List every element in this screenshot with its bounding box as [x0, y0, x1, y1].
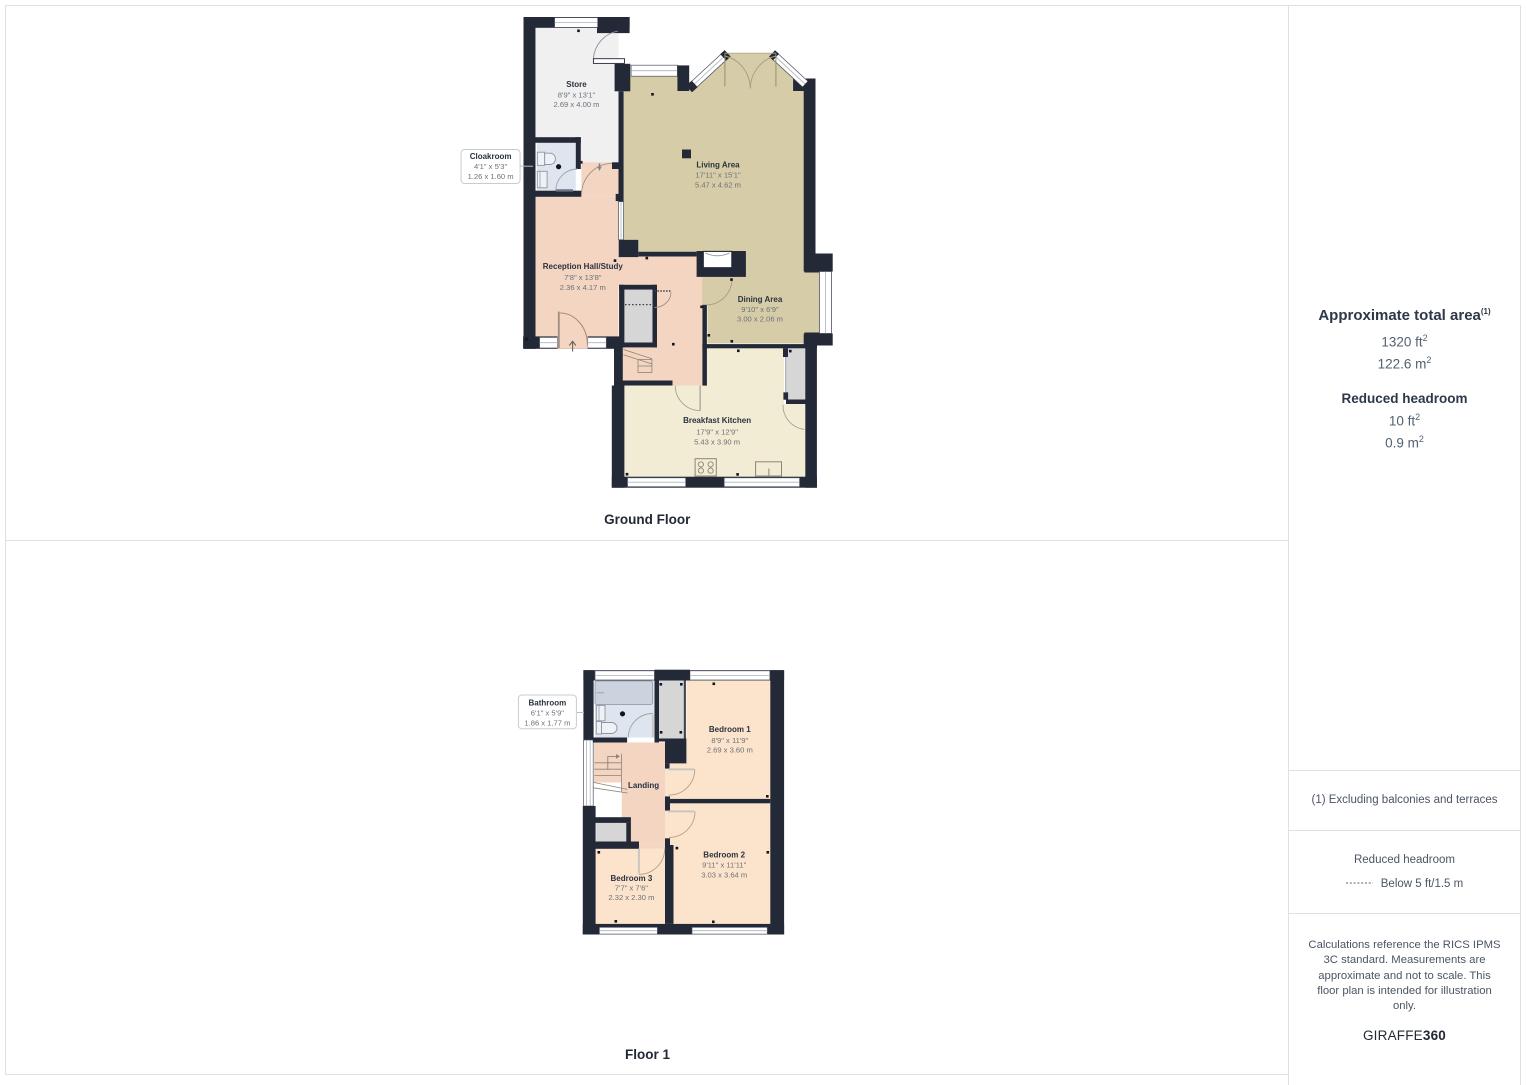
svg-text:2.69 x 4.00 m: 2.69 x 4.00 m — [553, 100, 599, 109]
svg-text:9'10" x 6'9": 9'10" x 6'9" — [741, 305, 779, 314]
svg-text:Bedroom 1: Bedroom 1 — [709, 725, 751, 734]
svg-text:Living Area: Living Area — [696, 161, 740, 170]
svg-text:2.36 x 4.17 m: 2.36 x 4.17 m — [560, 283, 606, 292]
svg-text:6'1" x 5'9": 6'1" x 5'9" — [531, 709, 565, 718]
svg-text:Cloakroom: Cloakroom — [470, 152, 512, 161]
svg-text:2.69 x 3.60 m: 2.69 x 3.60 m — [707, 746, 753, 755]
svg-text:Floor 1: Floor 1 — [625, 1047, 670, 1062]
svg-text:4'1" x 5'3": 4'1" x 5'3" — [474, 162, 508, 171]
svg-text:Breakfast Kitchen: Breakfast Kitchen — [683, 416, 751, 425]
svg-text:Dining Area: Dining Area — [738, 295, 783, 304]
svg-text:Store: Store — [566, 80, 587, 89]
svg-text:3.03 x 3.64 m: 3.03 x 3.64 m — [701, 870, 747, 879]
svg-text:5.47 x 4.62 m: 5.47 x 4.62 m — [695, 180, 741, 189]
svg-text:2.32 x 2.30 m: 2.32 x 2.30 m — [608, 893, 654, 902]
svg-text:7'8" x 13'8": 7'8" x 13'8" — [564, 273, 602, 282]
svg-text:8'9" x 13'1": 8'9" x 13'1" — [558, 90, 596, 99]
svg-text:8'9" x 11'9": 8'9" x 11'9" — [711, 736, 748, 745]
svg-text:Bedroom 2: Bedroom 2 — [703, 850, 745, 859]
svg-text:1.86 x 1.77 m: 1.86 x 1.77 m — [524, 719, 570, 728]
svg-text:5.43 x 3.90 m: 5.43 x 3.90 m — [694, 438, 740, 447]
svg-text:3.00 x 2.06 m: 3.00 x 2.06 m — [737, 315, 783, 324]
svg-text:Landing: Landing — [628, 781, 659, 790]
svg-text:17'9" x 12'9": 17'9" x 12'9" — [696, 428, 738, 437]
svg-text:Bedroom 3: Bedroom 3 — [611, 874, 653, 883]
svg-text:Ground Floor: Ground Floor — [604, 512, 691, 527]
svg-text:1.26 x 1.60 m: 1.26 x 1.60 m — [468, 172, 514, 181]
svg-text:Bathroom: Bathroom — [529, 699, 567, 708]
svg-text:17'11" x 15'1": 17'11" x 15'1" — [695, 171, 741, 180]
svg-text:9'11" x 11'11": 9'11" x 11'11" — [702, 861, 746, 870]
svg-text:7'7" x 7'6": 7'7" x 7'6" — [615, 883, 649, 892]
svg-text:Reception Hall/Study: Reception Hall/Study — [543, 262, 624, 271]
